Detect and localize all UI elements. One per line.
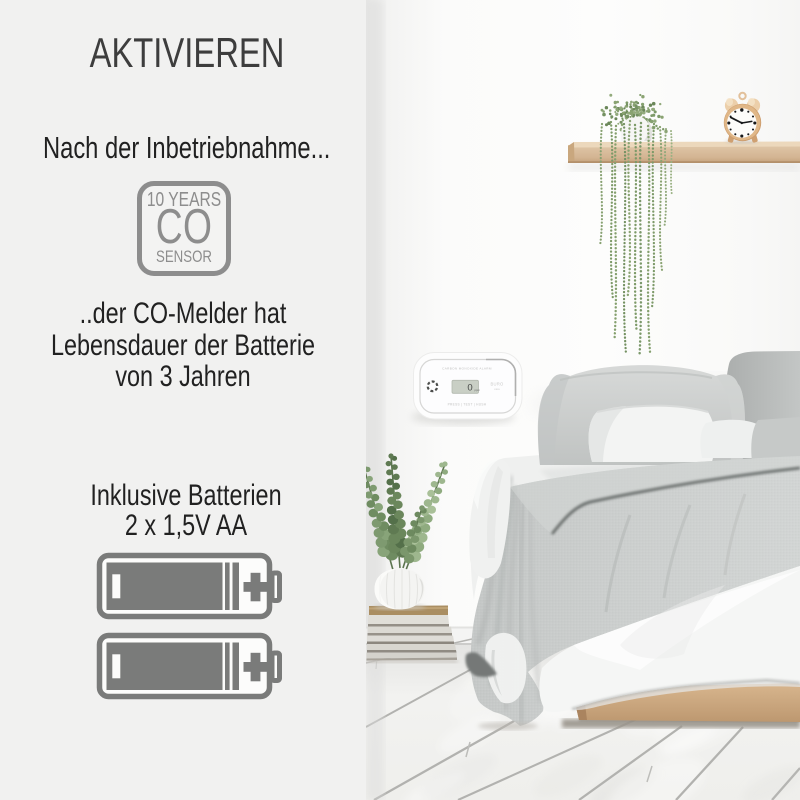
- svg-text:BURO: BURO: [491, 382, 504, 387]
- svg-text:care: care: [494, 387, 500, 391]
- svg-text:ppm: ppm: [475, 388, 481, 392]
- svg-text:PRESS | TEST | HUSH: PRESS | TEST | HUSH: [448, 403, 487, 407]
- svg-text:0: 0: [467, 383, 472, 394]
- svg-text:CARBON MONOXIDE ALARM: CARBON MONOXIDE ALARM: [442, 367, 492, 371]
